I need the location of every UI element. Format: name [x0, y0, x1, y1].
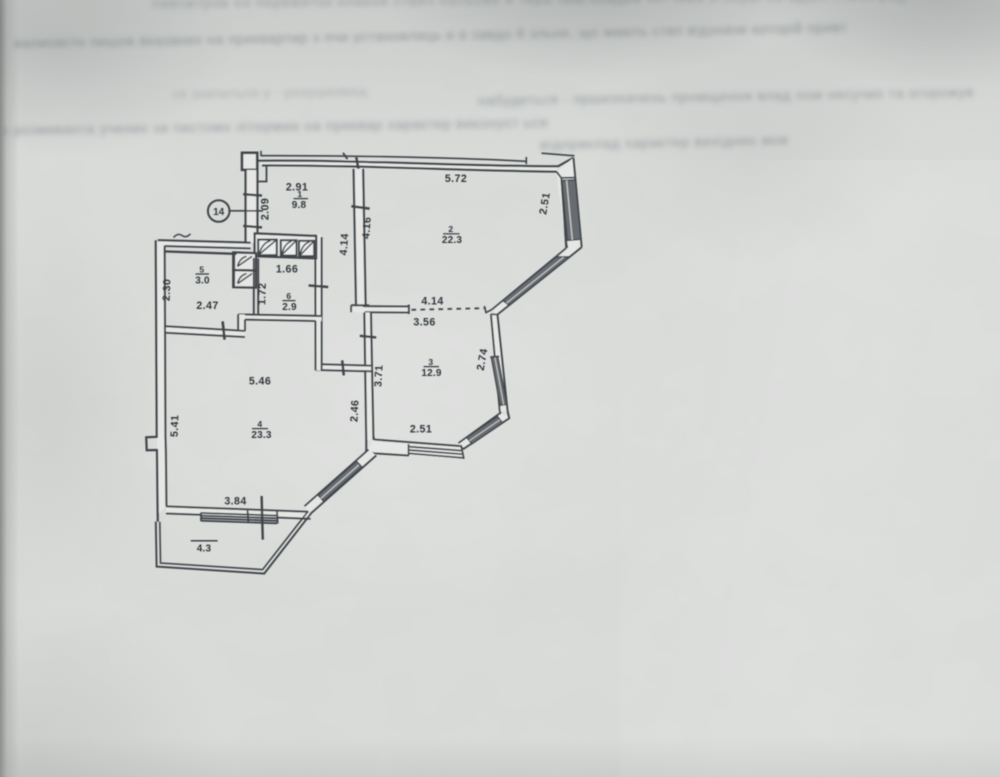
- svg-text:1.72: 1.72: [256, 283, 269, 306]
- svg-text:3.84: 3.84: [224, 496, 246, 508]
- svg-text:2: 2: [448, 224, 453, 234]
- svg-text:4.16: 4.16: [360, 216, 374, 239]
- svg-text:3.71: 3.71: [372, 364, 385, 387]
- svg-text:5.72: 5.72: [445, 173, 467, 185]
- svg-text:12.9: 12.9: [421, 368, 442, 379]
- svg-text:2.51: 2.51: [410, 424, 432, 436]
- svg-text:22.3: 22.3: [442, 235, 463, 246]
- svg-text:4: 4: [257, 419, 262, 429]
- svg-text:2.09: 2.09: [260, 198, 272, 220]
- svg-text:9.8: 9.8: [292, 200, 307, 211]
- svg-text:1: 1: [297, 189, 302, 199]
- svg-text:4.14: 4.14: [338, 233, 352, 256]
- svg-text:2.46: 2.46: [348, 399, 361, 422]
- svg-text:2.47: 2.47: [196, 300, 218, 312]
- svg-text:1.66: 1.66: [276, 264, 298, 276]
- svg-text:4.3: 4.3: [197, 544, 212, 555]
- svg-text:5: 5: [199, 265, 204, 275]
- svg-text:3.56: 3.56: [413, 317, 435, 329]
- svg-text:5.46: 5.46: [249, 376, 271, 388]
- svg-text:5.41: 5.41: [169, 415, 182, 438]
- svg-text:23.3: 23.3: [251, 430, 272, 441]
- svg-text:3: 3: [428, 357, 433, 367]
- svg-text:3.0: 3.0: [195, 276, 210, 287]
- svg-text:2.9: 2.9: [282, 302, 297, 313]
- svg-text:14: 14: [213, 207, 225, 218]
- svg-text:4.14: 4.14: [421, 296, 443, 308]
- svg-text:2.30: 2.30: [161, 279, 174, 302]
- svg-text:6: 6: [286, 291, 291, 301]
